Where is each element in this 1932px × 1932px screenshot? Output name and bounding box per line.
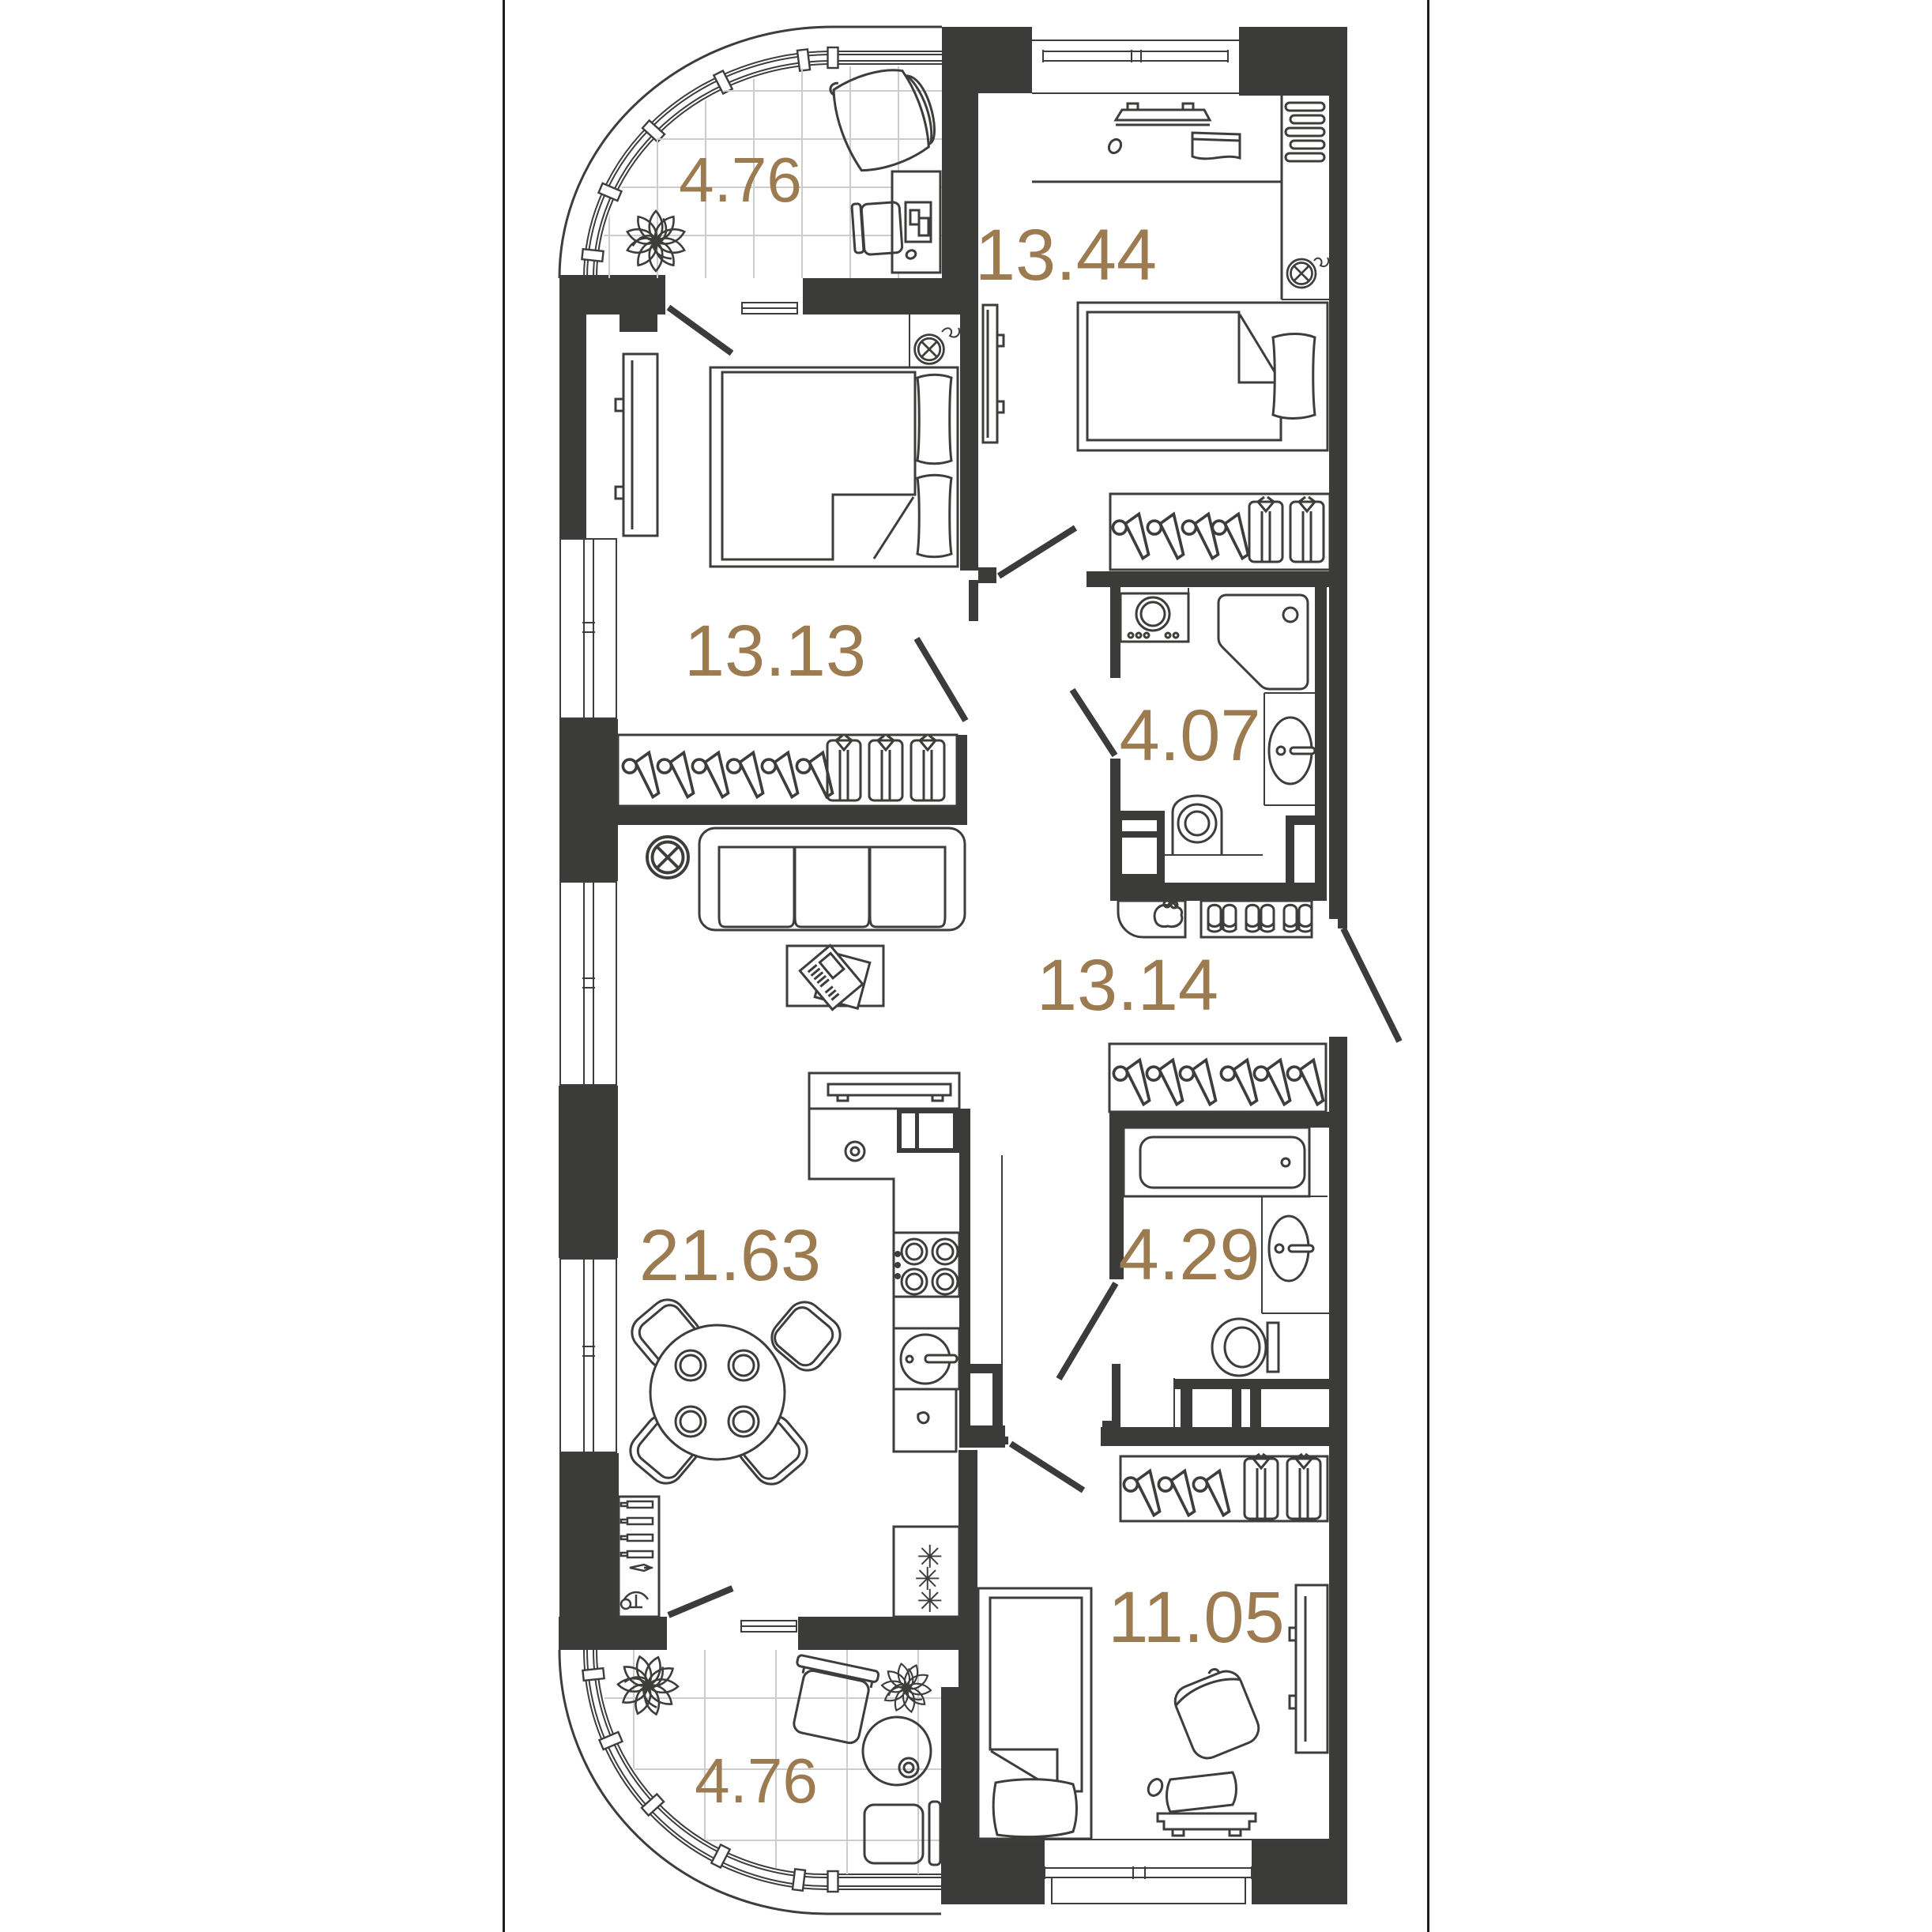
svg-text:✳: ✳ bbox=[917, 1584, 943, 1619]
svg-text:4.76: 4.76 bbox=[679, 145, 802, 215]
svg-text:4.29: 4.29 bbox=[1118, 1215, 1260, 1295]
svg-text:4.76: 4.76 bbox=[695, 1746, 818, 1816]
svg-text:11.05: 11.05 bbox=[1108, 1577, 1284, 1658]
svg-text:21.63: 21.63 bbox=[639, 1215, 821, 1296]
svg-text:4.07: 4.07 bbox=[1119, 695, 1260, 776]
svg-text:13.14: 13.14 bbox=[1037, 945, 1218, 1026]
svg-text:13.13: 13.13 bbox=[684, 611, 866, 691]
svg-text:13.44: 13.44 bbox=[975, 215, 1157, 296]
